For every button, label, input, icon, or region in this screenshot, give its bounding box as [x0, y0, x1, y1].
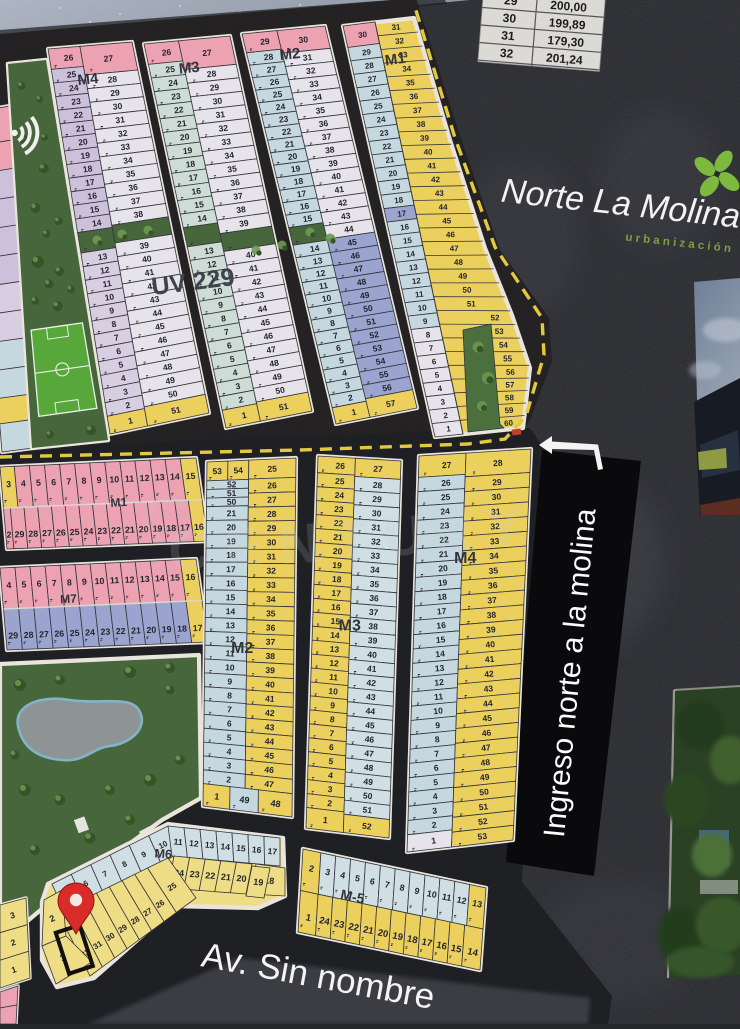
svg-text:179,30: 179,30: [547, 33, 585, 50]
svg-text:17: 17: [437, 606, 448, 617]
svg-text:34: 34: [123, 155, 134, 166]
svg-text:9: 9: [227, 676, 233, 686]
svg-text:19: 19: [391, 930, 404, 943]
svg-text:25: 25: [335, 476, 345, 487]
svg-text:33: 33: [266, 580, 276, 590]
svg-text:40: 40: [331, 171, 342, 182]
svg-text:37: 37: [130, 195, 141, 206]
svg-text:11: 11: [318, 280, 329, 291]
svg-text:21: 21: [176, 118, 187, 129]
svg-text:M4: M4: [77, 70, 100, 89]
svg-text:16: 16: [435, 940, 448, 953]
svg-text:11: 11: [102, 278, 113, 289]
svg-text:45: 45: [347, 237, 358, 248]
svg-text:14: 14: [155, 573, 165, 583]
svg-text:17: 17: [331, 588, 342, 599]
svg-text:33: 33: [370, 550, 380, 561]
svg-text:31: 31: [215, 109, 226, 120]
svg-text:15: 15: [194, 199, 205, 210]
svg-text:23: 23: [100, 626, 110, 636]
svg-text:44: 44: [483, 698, 494, 709]
svg-text:39: 39: [328, 158, 339, 169]
svg-text:29: 29: [504, 0, 519, 8]
svg-text:38: 38: [265, 651, 275, 661]
svg-text:49: 49: [458, 272, 467, 281]
svg-text:36: 36: [266, 622, 276, 632]
svg-text:16: 16: [400, 222, 410, 232]
svg-text:22: 22: [382, 142, 392, 152]
svg-text:25: 25: [165, 64, 176, 75]
svg-text:21: 21: [284, 138, 295, 149]
svg-text:26: 26: [370, 88, 380, 98]
svg-text:17: 17: [85, 177, 96, 188]
svg-text:50: 50: [362, 790, 373, 801]
svg-text:23: 23: [189, 869, 200, 880]
svg-text:21: 21: [385, 155, 395, 165]
svg-text:6: 6: [51, 477, 56, 487]
svg-text:27: 27: [39, 629, 49, 639]
svg-text:31: 31: [371, 522, 381, 533]
svg-text:48: 48: [480, 757, 491, 768]
svg-text:42: 42: [484, 668, 495, 679]
svg-text:20: 20: [236, 873, 247, 884]
svg-text:30: 30: [112, 101, 123, 112]
svg-text:45: 45: [482, 713, 493, 724]
svg-text:29: 29: [362, 47, 372, 57]
svg-text:C: C: [136, 480, 194, 563]
svg-text:36: 36: [488, 580, 498, 591]
svg-text:29: 29: [8, 630, 18, 640]
svg-text:10: 10: [328, 686, 339, 697]
svg-text:30: 30: [502, 11, 517, 26]
svg-text:38: 38: [416, 120, 426, 129]
svg-text:26: 26: [335, 461, 345, 472]
svg-text:51: 51: [362, 804, 373, 815]
svg-text:21: 21: [75, 123, 86, 134]
svg-text:10: 10: [225, 662, 235, 673]
svg-text:17: 17: [193, 623, 203, 633]
svg-text:29: 29: [14, 529, 24, 539]
svg-text:R: R: [431, 499, 476, 565]
svg-text:M3: M3: [178, 59, 201, 78]
svg-text:40: 40: [367, 649, 378, 660]
svg-text:28: 28: [493, 458, 503, 469]
svg-text:3: 3: [6, 479, 11, 489]
svg-text:8: 8: [67, 577, 72, 587]
svg-text:35: 35: [406, 78, 416, 88]
svg-text:14: 14: [91, 217, 102, 228]
svg-text:18: 18: [293, 176, 304, 187]
svg-text:4: 4: [21, 478, 26, 488]
svg-text:46: 46: [350, 250, 361, 261]
svg-text:4: 4: [6, 580, 11, 590]
svg-text:10: 10: [109, 474, 119, 484]
svg-text:35: 35: [488, 565, 498, 576]
svg-text:7: 7: [66, 476, 71, 486]
svg-text:29: 29: [372, 494, 382, 505]
svg-text:30: 30: [267, 537, 277, 547]
svg-text:33: 33: [120, 141, 131, 152]
svg-text:17: 17: [188, 172, 199, 183]
svg-text:17: 17: [267, 846, 278, 857]
svg-text:41: 41: [367, 663, 378, 674]
svg-text:24: 24: [376, 115, 386, 125]
svg-text:48: 48: [356, 276, 367, 287]
svg-text:40: 40: [424, 147, 434, 156]
svg-text:28: 28: [107, 74, 118, 85]
svg-text:12: 12: [411, 276, 421, 286]
svg-text:20: 20: [287, 151, 298, 162]
svg-text:55: 55: [503, 354, 512, 363]
svg-text:14: 14: [220, 841, 231, 852]
svg-text:20: 20: [146, 625, 156, 635]
svg-text:54: 54: [233, 465, 243, 475]
svg-text:8: 8: [81, 476, 86, 486]
svg-text:M3: M3: [339, 617, 361, 634]
svg-text:M7: M7: [60, 591, 78, 606]
svg-text:25: 25: [272, 89, 283, 100]
svg-text:14: 14: [309, 243, 320, 254]
svg-text:28: 28: [373, 480, 383, 491]
svg-text:17: 17: [296, 188, 307, 199]
svg-text:27: 27: [42, 528, 52, 538]
svg-text:20: 20: [78, 136, 89, 147]
svg-text:11: 11: [434, 691, 444, 702]
svg-text:49: 49: [363, 776, 374, 787]
svg-text:26: 26: [56, 527, 66, 537]
svg-text:22: 22: [174, 104, 185, 115]
svg-text:23: 23: [71, 96, 82, 107]
svg-text:40: 40: [265, 679, 275, 690]
svg-text:28: 28: [28, 528, 38, 538]
svg-text:9: 9: [82, 577, 87, 587]
svg-text:47: 47: [353, 263, 364, 274]
svg-text:46: 46: [481, 727, 492, 738]
svg-text:42: 42: [251, 276, 262, 287]
svg-text:13: 13: [434, 663, 445, 674]
svg-text:24: 24: [334, 490, 344, 501]
svg-text:30: 30: [358, 30, 368, 40]
svg-text:23: 23: [171, 91, 182, 102]
svg-text:30: 30: [372, 508, 382, 519]
svg-text:M1: M1: [384, 50, 407, 70]
svg-text:32: 32: [499, 46, 514, 61]
svg-text:39: 39: [368, 635, 379, 646]
svg-text:58: 58: [505, 393, 515, 402]
svg-text:14: 14: [226, 606, 236, 616]
svg-text:38: 38: [368, 621, 379, 632]
svg-text:24: 24: [275, 101, 286, 112]
svg-text:11: 11: [173, 836, 183, 847]
svg-text:16: 16: [436, 620, 447, 631]
svg-text:47: 47: [481, 742, 492, 753]
svg-text:35: 35: [369, 579, 379, 590]
svg-text:22: 22: [205, 870, 216, 881]
svg-text:39: 39: [265, 665, 275, 676]
svg-text:50: 50: [463, 286, 472, 295]
svg-text:53: 53: [477, 831, 488, 842]
svg-text:35: 35: [227, 163, 238, 174]
svg-text:45: 45: [442, 216, 452, 225]
svg-text:37: 37: [233, 190, 244, 201]
svg-text:45: 45: [365, 720, 376, 731]
svg-text:21: 21: [125, 524, 135, 534]
svg-text:36: 36: [128, 182, 139, 193]
svg-text:39: 39: [238, 218, 249, 229]
svg-text:M6: M6: [154, 846, 172, 861]
svg-text:29: 29: [110, 87, 121, 98]
svg-text:N: N: [276, 511, 321, 577]
svg-text:13: 13: [140, 574, 150, 584]
svg-text:5: 5: [36, 478, 41, 488]
svg-text:48: 48: [454, 258, 463, 267]
svg-text:40: 40: [141, 253, 152, 264]
svg-text:27: 27: [267, 494, 277, 504]
svg-text:12: 12: [434, 677, 445, 688]
svg-text:199,89: 199,89: [548, 15, 586, 32]
svg-text:19: 19: [162, 624, 172, 634]
svg-text:26: 26: [63, 52, 74, 63]
svg-text:43: 43: [265, 722, 276, 733]
svg-text:52: 52: [478, 816, 489, 827]
svg-text:20: 20: [377, 927, 390, 940]
svg-text:41: 41: [427, 161, 437, 170]
svg-text:59: 59: [504, 406, 514, 416]
svg-text:27: 27: [373, 464, 383, 475]
svg-text:44: 44: [264, 736, 275, 747]
svg-text:31: 31: [115, 114, 126, 125]
svg-text:60: 60: [504, 418, 514, 428]
svg-text:43: 43: [435, 189, 445, 198]
svg-text:20: 20: [388, 168, 398, 178]
svg-text:27: 27: [103, 53, 114, 64]
svg-text:16: 16: [251, 844, 262, 855]
svg-text:42: 42: [337, 197, 348, 208]
svg-text:24: 24: [168, 77, 179, 88]
svg-text:21: 21: [220, 872, 231, 883]
svg-text:22: 22: [281, 126, 292, 137]
svg-text:33: 33: [309, 78, 320, 89]
svg-text:50: 50: [227, 497, 237, 507]
svg-text:38: 38: [133, 209, 144, 220]
svg-text:M2: M2: [279, 45, 302, 64]
svg-text:48: 48: [270, 798, 281, 809]
svg-text:22: 22: [347, 921, 360, 934]
svg-text:25: 25: [70, 628, 80, 638]
svg-text:10: 10: [104, 291, 115, 303]
svg-text:29: 29: [267, 523, 277, 533]
svg-text:42: 42: [431, 175, 441, 184]
svg-text:18: 18: [185, 158, 196, 169]
svg-text:24: 24: [83, 526, 93, 536]
svg-text:19: 19: [290, 163, 301, 174]
svg-text:42: 42: [265, 708, 275, 719]
svg-text:27: 27: [202, 47, 213, 58]
svg-text:31: 31: [267, 551, 277, 561]
svg-text:49: 49: [479, 772, 490, 783]
svg-text:44: 44: [365, 706, 376, 717]
svg-text:12: 12: [189, 838, 200, 849]
svg-text:22: 22: [116, 626, 126, 636]
svg-text:15: 15: [435, 634, 446, 645]
svg-text:21: 21: [131, 625, 141, 635]
svg-text:22: 22: [111, 525, 121, 535]
svg-text:13: 13: [97, 251, 108, 262]
svg-text:20: 20: [438, 563, 448, 574]
svg-text:24: 24: [85, 627, 95, 637]
svg-text:46: 46: [264, 764, 275, 775]
svg-text:15: 15: [403, 236, 413, 246]
svg-text:11: 11: [415, 290, 425, 300]
svg-text:16: 16: [299, 200, 310, 211]
svg-text:43: 43: [254, 289, 265, 300]
svg-text:8: 8: [227, 690, 233, 700]
svg-text:30: 30: [212, 96, 223, 107]
svg-text:37: 37: [321, 131, 332, 142]
svg-text:5: 5: [21, 579, 26, 589]
svg-text:26: 26: [441, 477, 451, 488]
svg-text:18: 18: [82, 163, 93, 174]
svg-text:46: 46: [263, 330, 274, 342]
svg-text:15: 15: [89, 204, 100, 215]
svg-text:44: 44: [439, 203, 449, 212]
svg-text:18: 18: [437, 591, 447, 602]
svg-text:U: U: [381, 503, 426, 569]
svg-text:18: 18: [406, 933, 419, 946]
svg-text:52: 52: [369, 329, 380, 341]
svg-text:9: 9: [96, 475, 101, 485]
svg-text:25: 25: [70, 527, 80, 537]
svg-text:51: 51: [478, 801, 489, 812]
svg-text:17: 17: [421, 937, 434, 950]
svg-text:12: 12: [329, 658, 340, 669]
svg-text:15: 15: [185, 471, 195, 481]
svg-text:32: 32: [218, 123, 229, 134]
svg-text:23: 23: [97, 526, 107, 536]
svg-text:25: 25: [66, 69, 77, 80]
svg-text:29: 29: [209, 82, 220, 93]
svg-text:44: 44: [343, 223, 354, 234]
svg-text:49: 49: [239, 794, 250, 805]
svg-text:26: 26: [54, 628, 64, 638]
svg-text:19: 19: [253, 877, 264, 888]
svg-text:45: 45: [260, 317, 271, 328]
svg-text:37: 37: [368, 607, 379, 618]
svg-text:13: 13: [225, 620, 235, 630]
svg-text:13: 13: [155, 472, 165, 482]
svg-text:38: 38: [486, 610, 497, 621]
svg-text:11: 11: [329, 672, 339, 683]
svg-text:25: 25: [373, 101, 383, 111]
svg-text:31: 31: [302, 52, 313, 63]
svg-text:52: 52: [491, 313, 500, 322]
svg-text:13: 13: [329, 644, 340, 655]
svg-text:40: 40: [485, 639, 496, 650]
svg-text:33: 33: [221, 136, 232, 147]
svg-text:19: 19: [80, 150, 91, 161]
svg-text:29: 29: [260, 36, 271, 47]
svg-text:12: 12: [99, 264, 110, 275]
svg-text:20: 20: [179, 131, 190, 142]
svg-text:12: 12: [315, 268, 326, 279]
svg-text:45: 45: [264, 750, 275, 761]
svg-text:14: 14: [406, 249, 416, 259]
svg-text:34: 34: [312, 92, 323, 103]
svg-text:39: 39: [486, 624, 497, 635]
svg-text:23: 23: [379, 128, 389, 138]
svg-text:53: 53: [495, 327, 504, 336]
svg-text:56: 56: [506, 368, 515, 377]
svg-text:32: 32: [371, 536, 381, 547]
svg-text:10: 10: [417, 303, 427, 313]
svg-text:53: 53: [212, 466, 222, 476]
svg-text:32: 32: [395, 36, 405, 46]
svg-text:11: 11: [110, 575, 120, 585]
svg-text:54: 54: [499, 341, 508, 350]
svg-text:44: 44: [257, 303, 268, 314]
svg-text:31: 31: [501, 28, 516, 43]
svg-text:49: 49: [359, 289, 370, 300]
svg-text:51: 51: [366, 316, 377, 328]
svg-text:T: T: [332, 507, 371, 572]
svg-text:7: 7: [52, 578, 57, 588]
svg-text:36: 36: [318, 118, 329, 129]
svg-text:35: 35: [315, 105, 326, 116]
svg-text:14: 14: [197, 213, 208, 224]
svg-text:30: 30: [298, 34, 309, 45]
svg-text:13: 13: [312, 255, 323, 266]
svg-text:10: 10: [94, 576, 104, 586]
svg-text:2: 2: [6, 530, 11, 540]
svg-text:34: 34: [370, 564, 380, 575]
svg-text:32: 32: [117, 128, 128, 139]
svg-text:27: 27: [367, 74, 377, 84]
svg-text:14: 14: [435, 648, 446, 659]
svg-text:31: 31: [391, 22, 401, 32]
svg-text:28: 28: [263, 51, 274, 62]
svg-text:19: 19: [437, 577, 447, 588]
svg-text:13: 13: [204, 840, 215, 851]
svg-text:42: 42: [366, 677, 377, 688]
svg-text:34: 34: [266, 594, 276, 604]
svg-text:57: 57: [505, 380, 515, 389]
svg-text:26: 26: [267, 480, 277, 490]
svg-text:38: 38: [236, 204, 247, 215]
svg-text:51: 51: [467, 299, 476, 308]
svg-text:36: 36: [230, 177, 241, 188]
svg-text:39: 39: [139, 240, 150, 251]
svg-text:12: 12: [125, 574, 135, 584]
svg-text:41: 41: [265, 693, 275, 704]
svg-text:18: 18: [332, 574, 342, 585]
svg-text:28: 28: [24, 630, 34, 640]
svg-text:17: 17: [397, 209, 407, 219]
svg-text:46: 46: [446, 230, 456, 239]
svg-text:16: 16: [191, 186, 202, 197]
svg-text:15: 15: [302, 213, 313, 224]
svg-text:41: 41: [334, 184, 345, 195]
svg-text:50: 50: [479, 786, 490, 797]
svg-text:32: 32: [266, 566, 276, 576]
svg-text:43: 43: [366, 691, 377, 702]
svg-text:22: 22: [73, 109, 84, 120]
svg-text:37: 37: [413, 106, 423, 115]
svg-text:16: 16: [331, 602, 342, 613]
svg-text:201,24: 201,24: [545, 51, 583, 68]
svg-text:19: 19: [182, 145, 193, 156]
svg-text:15: 15: [236, 843, 247, 854]
svg-text:38: 38: [324, 144, 335, 155]
